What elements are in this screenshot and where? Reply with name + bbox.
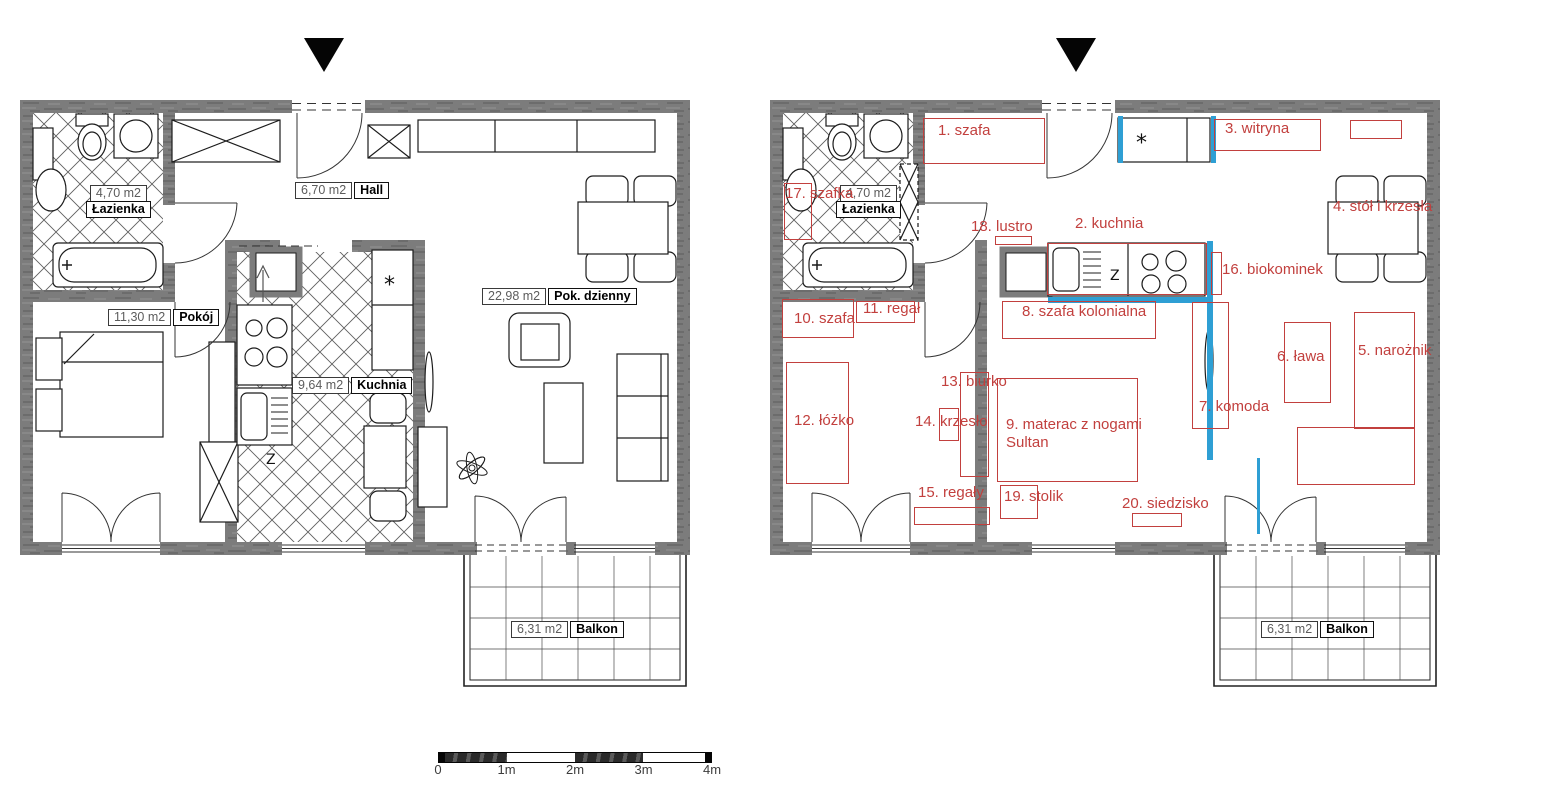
sink-z-icon: Z (266, 452, 276, 468)
wardrobe (209, 342, 235, 442)
hall-closet (900, 164, 918, 240)
nightstand (36, 389, 62, 431)
scale-tick-label: 0 (434, 762, 441, 777)
mirror (425, 352, 433, 412)
french-door (62, 493, 160, 542)
window (812, 545, 910, 552)
scale-tick-label: 3m (634, 762, 652, 777)
plan-annotated: * Z 4,70 m2Łazienka6,31 m2Balkon 1. szaf… (770, 100, 1460, 700)
window (1324, 545, 1405, 552)
window (574, 545, 655, 552)
balcony-door-sill (475, 545, 566, 551)
living-cabinet (418, 120, 655, 152)
nightstand (36, 338, 62, 380)
mirror (1205, 330, 1213, 392)
sofa (617, 354, 668, 481)
balcony-door-sill (1225, 545, 1316, 551)
chair (1336, 252, 1378, 282)
scale-tick-label: 2m (566, 762, 584, 777)
chair (370, 491, 406, 521)
scale-segment (507, 753, 575, 762)
balcony-door (1225, 496, 1316, 542)
kitchen-sink (1053, 248, 1079, 291)
defrost-star-icon: * (384, 273, 395, 298)
scale-tick-labels: 01m2m3m4m (438, 762, 712, 778)
french-door (812, 493, 910, 542)
fixtures (783, 114, 1426, 392)
plan-annotated-drawing: * Z (770, 100, 1460, 700)
plant (455, 451, 488, 484)
fridge-cabinet (1118, 118, 1210, 162)
scale-segment (643, 753, 705, 762)
floor-plan-canvas: * Z 4,70 m2Łazienka6,70 m2Hall11,30 m2Po… (0, 0, 1543, 797)
balcony (1214, 555, 1436, 686)
plan-original-drawing: * Z (20, 100, 710, 700)
bed (60, 332, 163, 437)
chair (634, 252, 676, 282)
washbasin (36, 169, 66, 211)
dining-table (578, 202, 668, 254)
chair (370, 393, 406, 423)
entrance-opening (292, 104, 365, 111)
window (62, 545, 160, 552)
entrance-door (297, 113, 362, 178)
defrost-star-icon: * (1136, 131, 1147, 156)
scale-tick-label: 4m (703, 762, 721, 777)
balcony-door (475, 496, 566, 542)
balcony (464, 555, 686, 686)
scale-segment (445, 753, 507, 762)
entrance-arrow-icon-right (1056, 38, 1096, 72)
scale-tick-label: 1m (497, 762, 515, 777)
window (1032, 545, 1115, 552)
scale-bar: 01m2m3m4m (438, 744, 714, 778)
dining-table (1328, 202, 1418, 254)
cabinet (418, 427, 447, 507)
stove (237, 305, 292, 385)
entrance-door (1047, 113, 1112, 178)
entrance-arrow-icon-left (304, 38, 344, 72)
entrance-opening (1042, 104, 1115, 111)
plan-original: * Z 4,70 m2Łazienka6,70 m2Hall11,30 m2Po… (20, 100, 710, 700)
window (282, 545, 365, 552)
chair (586, 252, 628, 282)
scale-segment (575, 753, 643, 762)
scale-segment (705, 753, 711, 762)
coffee-table (544, 383, 583, 463)
sink-z-icon: Z (1110, 268, 1120, 284)
chair (1384, 252, 1426, 282)
kitchen-cabinet (372, 250, 413, 370)
washbasin (786, 169, 816, 211)
kitchen-table (364, 426, 406, 488)
room-door (925, 302, 980, 357)
